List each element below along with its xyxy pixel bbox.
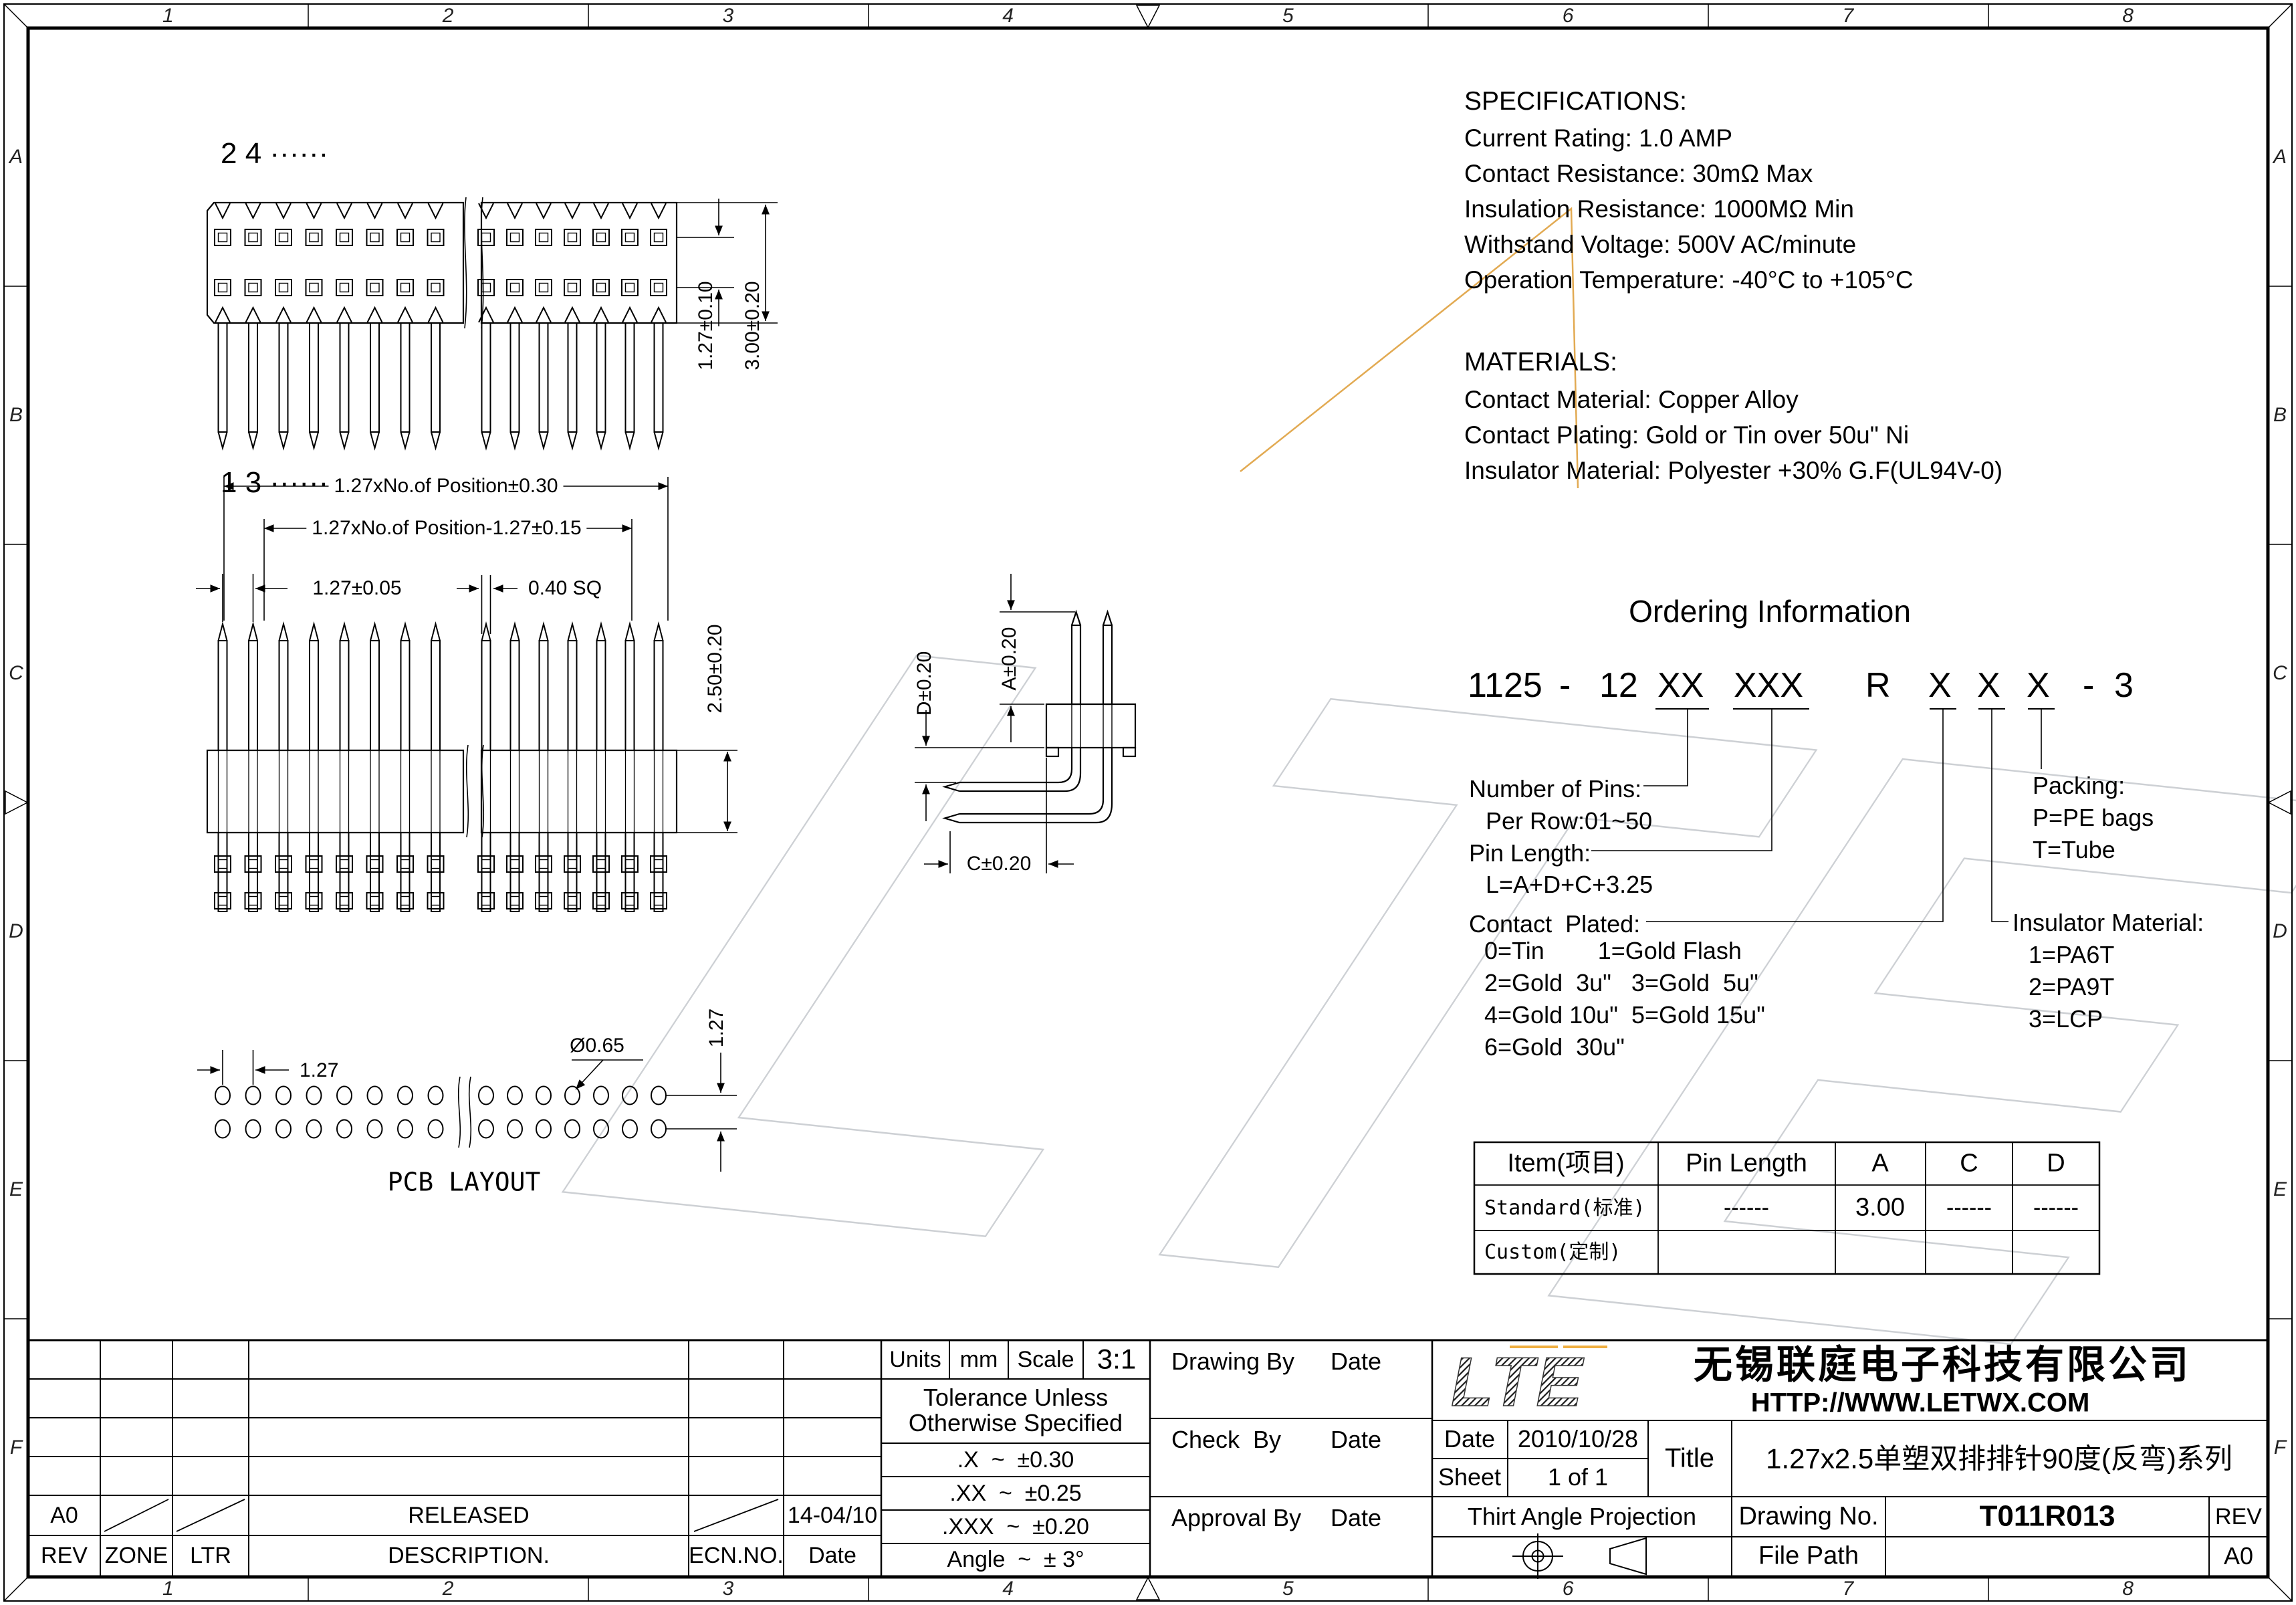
- dim-table-header: Item(项目): [1507, 1150, 1624, 1178]
- units-value: mm: [960, 1347, 998, 1372]
- contact-plated-label: Contact Plated:: [1469, 911, 1640, 938]
- spec-line: Withstand Voltage: 500V AC/minute: [1464, 231, 1856, 258]
- number-of-pins-value: Per Row:01~50: [1486, 808, 1652, 835]
- drawing-by-label: Drawing By: [1171, 1348, 1294, 1375]
- sheet-value: 1 of 1: [1548, 1464, 1608, 1491]
- revision-header-date: Date: [808, 1543, 856, 1568]
- zone-label: F: [2274, 1436, 2286, 1459]
- zone-label: 2: [443, 5, 454, 27]
- zone-label: 7: [1843, 5, 1854, 27]
- file-path-label: File Path: [1758, 1542, 1859, 1571]
- zone-label: D: [9, 920, 23, 943]
- drawing-no-label: Drawing No.: [1738, 1503, 1878, 1531]
- material-line: Insulator Material: Polyester +30% G.F(U…: [1464, 457, 2002, 484]
- dim-table-custom-label: Custom(定制): [1484, 1241, 1621, 1264]
- pcb-dim-hole: Ø0.65: [570, 1035, 624, 1057]
- contact-plated-option: 0=Tin 1=Gold Flash: [1484, 938, 1742, 964]
- part-group: 1125: [1468, 666, 1542, 705]
- title-value: 1.27x2.5单塑双排排针90度(反弯)系列: [1766, 1442, 2232, 1474]
- contact-plated-option: 2=Gold 3u" 3=Gold 5u": [1484, 970, 1758, 996]
- revision-header-ltr: LTR: [190, 1543, 231, 1568]
- tolerance-row: .XXX ~ ±0.20: [942, 1514, 1089, 1539]
- pcb-layout-label: PCB LAYOUT: [388, 1168, 541, 1197]
- zone-label: 8: [2122, 5, 2134, 27]
- dim-body-height: 2.50±0.20: [704, 624, 727, 713]
- zone-label: 1: [162, 1578, 174, 1600]
- lte-logo: LTE: [1451, 1344, 1607, 1421]
- number-of-pins-label: Number of Pins:: [1469, 776, 1641, 802]
- sheet-label: Sheet: [1438, 1464, 1501, 1491]
- part-group: -: [1559, 666, 1571, 705]
- date-label: Date: [1331, 1505, 1381, 1531]
- zone-label: D: [2273, 920, 2287, 943]
- scale-label: Scale: [1017, 1347, 1074, 1372]
- zone-label: 6: [1563, 5, 1574, 27]
- part-group: -: [2083, 666, 2094, 705]
- part-group: XX: [1657, 666, 1704, 705]
- revision-header-rev: REV: [41, 1543, 88, 1568]
- date-value: 2010/10/28: [1518, 1426, 1638, 1453]
- pcb-dim-row-pitch: 1.27: [705, 1008, 728, 1047]
- drawing-no-value: T011R013: [1979, 1499, 2115, 1532]
- specifications-title: SPECIFICATIONS:: [1464, 87, 1687, 116]
- part-group: XXX: [1734, 666, 1803, 705]
- dim-pitch: 1.27±0.05: [307, 577, 407, 600]
- zone-label: E: [2273, 1178, 2287, 1201]
- part-group: 3: [2114, 666, 2134, 705]
- dim-pin-size: 0.40 SQ: [523, 577, 607, 600]
- tolerance-title-line1: Tolerance Unless: [923, 1384, 1108, 1411]
- revision-date-value: 14-04/10: [788, 1503, 877, 1528]
- part-group: X: [2027, 666, 2050, 705]
- dim-table-cell: ------: [1946, 1195, 1992, 1220]
- dim-table-header: C: [1960, 1150, 1978, 1178]
- part-group: 12: [1599, 666, 1638, 705]
- company-website: HTTP://WWW.LETWX.COM: [1751, 1388, 2090, 1418]
- zone-label: E: [9, 1178, 23, 1201]
- zone-label: 1: [162, 5, 174, 27]
- dim-overall: 1.27xNo.of Position±0.30: [328, 475, 563, 498]
- third-angle-projection-icon: [1512, 1533, 1646, 1579]
- date-label: Date: [1331, 1348, 1381, 1375]
- lte-watermark: LTE: [473, 209, 2296, 1524]
- spec-line: Operation Temperature: -40°C to +105°C: [1464, 266, 1914, 294]
- pin-length-label: Pin Length:: [1469, 840, 1591, 867]
- contact-plated-option: 6=Gold 30u": [1484, 1034, 1625, 1061]
- zone-label: 4: [1002, 5, 1014, 27]
- tolerance-row: .XX ~ ±0.25: [949, 1481, 1081, 1506]
- dim-table-header: Pin Length: [1686, 1150, 1807, 1178]
- zone-label: F: [10, 1436, 22, 1459]
- pin-row-even-label: 2 4 ······: [221, 137, 328, 170]
- sheet-size-value: A0: [2224, 1543, 2253, 1570]
- zone-label: A: [2273, 146, 2287, 169]
- zone-label: C: [2273, 662, 2287, 685]
- packing-option: T=Tube: [2033, 837, 2115, 863]
- revision-header-description: DESCRIPTION.: [388, 1543, 550, 1568]
- materials-title: MATERIALS:: [1464, 348, 1617, 377]
- pin-row-odd-label: 1 3 ······: [221, 466, 328, 499]
- zone-label: 6: [1563, 1578, 1574, 1600]
- title-label: Title: [1665, 1444, 1714, 1474]
- rev-label: REV: [2215, 1504, 2262, 1529]
- projection-label: Thirt Angle Projection: [1468, 1503, 1696, 1530]
- zone-label: 3: [723, 5, 734, 27]
- company-name: 无锡联庭电子科技有限公司: [1694, 1344, 2191, 1388]
- check-by-label: Check By: [1171, 1426, 1281, 1453]
- packing-label: Packing:: [2033, 772, 2125, 799]
- zone-label: 7: [1843, 1578, 1854, 1600]
- dim-a: A±0.20: [998, 627, 1021, 691]
- zone-label: A: [9, 146, 23, 169]
- units-label: Units: [889, 1347, 941, 1372]
- tolerance-row: .X ~ ±0.30: [957, 1447, 1074, 1473]
- dim-c: C±0.20: [961, 853, 1037, 875]
- dim-height: 3.00±0.20: [741, 281, 764, 370]
- insulator-option: 1=PA6T: [2029, 942, 2114, 968]
- scale-value: 3:1: [1097, 1343, 1136, 1374]
- dim-inner: 1.27xNo.of Position-1.27±0.15: [306, 517, 586, 540]
- dim-d: D±0.20: [913, 651, 936, 716]
- pin-geometry: [215, 203, 667, 1138]
- pcb-dim-pitch: 1.27: [300, 1059, 338, 1082]
- approval-by-label: Approval By: [1171, 1505, 1301, 1531]
- dim-table-header: D: [2047, 1150, 2065, 1178]
- zone-label: 2: [443, 1578, 454, 1600]
- spec-line: Current Rating: 1.0 AMP: [1464, 124, 1732, 152]
- zone-label: B: [2273, 404, 2287, 427]
- dim-table-cell: ------: [2033, 1195, 2079, 1220]
- tolerance-row: Angle ~ ± 3°: [947, 1547, 1084, 1572]
- zone-label: 4: [1002, 1578, 1014, 1600]
- revision-header-zone: ZONE: [105, 1543, 168, 1568]
- material-line: Contact Plating: Gold or Tin over 50u" N…: [1464, 421, 1909, 449]
- insulator-material-label: Insulator Material:: [2013, 909, 2204, 936]
- part-group: X: [1928, 666, 1952, 705]
- zone-label: 5: [1282, 5, 1294, 27]
- insulator-option: 2=PA9T: [2029, 974, 2114, 1000]
- dim-table-cell: 3.00: [1855, 1194, 1905, 1222]
- tolerance-title-line2: Otherwise Specified: [909, 1410, 1123, 1436]
- engineering-drawing-sheet: LTE: [0, 0, 2296, 1605]
- dim-table-header: A: [1871, 1150, 1888, 1178]
- packing-option: P=PE bags: [2033, 805, 2154, 831]
- part-group: R: [1865, 666, 1891, 705]
- part-group: X: [1977, 666, 2000, 705]
- dim-row-pitch: 1.27±0.10: [695, 281, 717, 370]
- svg-text:LTE: LTE: [1451, 1344, 1585, 1421]
- contact-plated-option: 4=Gold 10u" 5=Gold 15u": [1484, 1002, 1765, 1029]
- dim-table-standard-label: Standard(标准): [1484, 1197, 1645, 1220]
- insulator-option: 3=LCP: [2029, 1006, 2103, 1033]
- spec-line: Contact Resistance: 30mΩ Max: [1464, 160, 1813, 187]
- material-line: Contact Material: Copper Alloy: [1464, 386, 1799, 413]
- date-label: Date: [1331, 1426, 1381, 1453]
- spec-line: Insulation Resistance: 1000MΩ Min: [1464, 195, 1854, 223]
- ordering-title: Ordering Information: [1629, 595, 1911, 629]
- zone-label: C: [9, 662, 23, 685]
- zone-label: 8: [2122, 1578, 2134, 1600]
- revision-rev-value: A0: [50, 1503, 78, 1528]
- revision-description-value: RELEASED: [408, 1503, 529, 1528]
- zone-label: 5: [1282, 1578, 1294, 1600]
- date-label: Date: [1444, 1426, 1495, 1453]
- zone-label: B: [9, 404, 23, 427]
- pin-length-value: L=A+D+C+3.25: [1486, 871, 1653, 898]
- revision-header-ecn: ECN.NO.: [689, 1543, 784, 1568]
- zone-label: 3: [723, 1578, 734, 1600]
- dim-table-cell: ------: [1724, 1195, 1769, 1220]
